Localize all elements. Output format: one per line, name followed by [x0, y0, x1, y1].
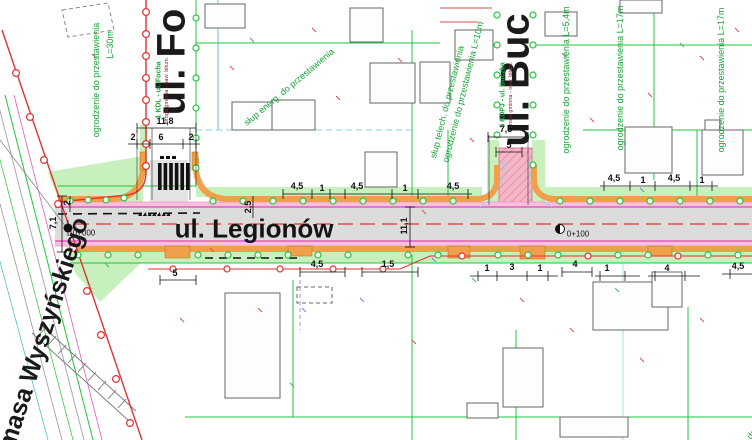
road-id-focha-sub: droga gminna - naw. bitum.	[164, 57, 170, 123]
dim-bottom-2: 1,5	[382, 259, 395, 269]
dim-mid-v1: 2,5	[243, 201, 253, 214]
annotation-fence-30m-length: L=30m	[105, 31, 115, 59]
dim-top-4: 1	[402, 183, 407, 193]
dim-topright-2: 1	[640, 175, 645, 185]
street-label-legionow: ul. Legionów	[175, 214, 334, 245]
dim-bottom-7: 1	[604, 263, 609, 273]
dim-topright-3: 4,5	[668, 173, 681, 183]
dim-top-5: 4,5	[447, 181, 460, 191]
km-label-100: 0+100	[567, 230, 589, 239]
dim-bottom-3: 1	[484, 263, 489, 273]
km-marker-100	[556, 225, 565, 234]
dim-mid-v2: 11,1	[399, 217, 409, 234]
road-id-focha: 1 KDL - ul. Focha	[156, 61, 163, 118]
dim-focha-a: 2	[130, 132, 135, 142]
dim-buczka-w1: 7,5	[500, 124, 513, 134]
dim-focha-width: 11,8	[156, 116, 173, 126]
dim-top-1: 4,5	[291, 181, 304, 191]
dim-bottom-4: 3	[509, 262, 514, 272]
dim-topright-4: 1	[699, 175, 704, 185]
annotation-fence-17m-b: ogrodzenie do przestawienia L=17m	[716, 8, 726, 153]
dim-bottom-1: 4,5	[311, 259, 324, 269]
dim-bottom-8: 4	[664, 263, 669, 273]
annotation-fence-54m: ogrodzenie do przestawienia L=5,4m	[561, 6, 571, 153]
dim-left-v1: 7,1	[48, 217, 58, 230]
annotation-fence-17m-a: ogrodzenie do przestawienia L=17m	[615, 6, 625, 151]
km-label-0: 0+000	[73, 229, 95, 238]
dim-bottom-9: 4,5	[732, 261, 745, 271]
plan-linework	[0, 0, 752, 440]
dim-topright-1: 4,5	[608, 173, 621, 183]
dim-buczka-w2: 5	[506, 140, 511, 150]
dim-bottom-5: 1	[537, 263, 542, 273]
dim-top-2: 1	[319, 183, 324, 193]
dim-bottom-0: 5	[172, 268, 177, 278]
dim-bottom-6: 4	[572, 259, 577, 269]
road-design-plan: ul. Legionów ul. Fo ul. Buc rymasa Wyszy…	[0, 0, 752, 440]
dim-left-v2: 2	[62, 200, 72, 205]
dim-focha-c: 2	[188, 132, 193, 142]
road-id-buczka: 5 KDPJ - ul. Buczka	[500, 62, 507, 127]
dim-top-3: 4,5	[351, 181, 364, 191]
road-id-buczka-sub: droga gminna - naw. bitum.	[508, 62, 514, 128]
buczka-roadway	[499, 148, 532, 208]
dim-focha-b: 6	[158, 132, 163, 142]
annotation-fence-30m: ogrodzenie do przestawienia	[91, 23, 101, 138]
